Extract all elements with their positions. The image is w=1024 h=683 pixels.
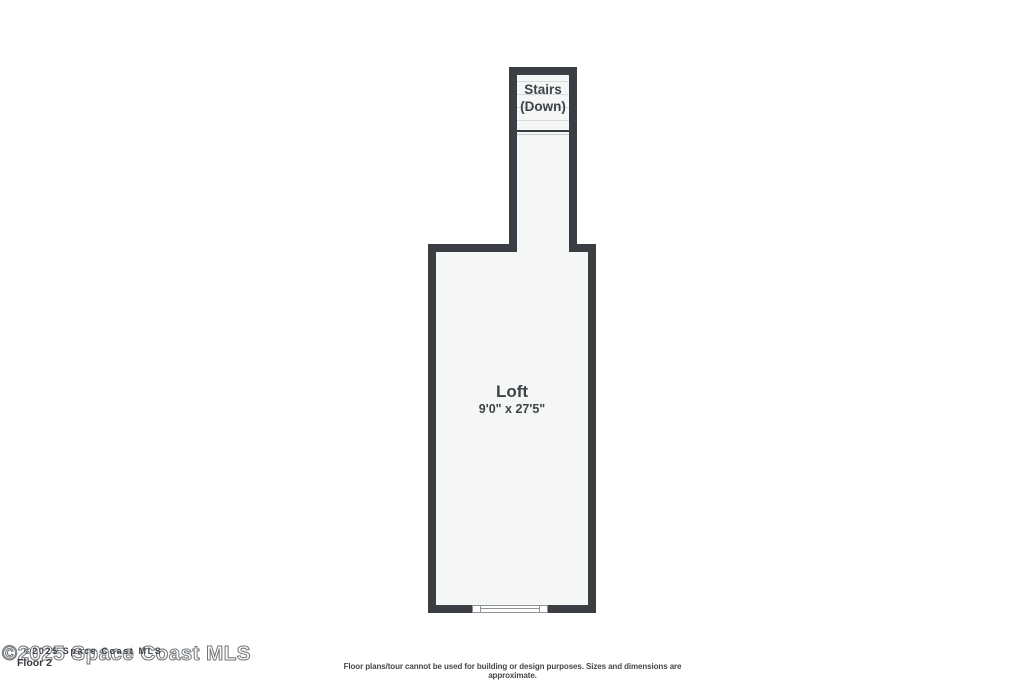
- room-label: Loft 9'0" x 27'5": [436, 382, 588, 417]
- stairs-landing-line: [517, 130, 569, 132]
- stairs-label-line1: Stairs: [509, 81, 577, 98]
- room-top-wall-left-segment: [428, 244, 517, 252]
- stair-tread-line: [517, 120, 569, 121]
- floor-label: Floor 2: [17, 657, 52, 669]
- window-jamb-left: [473, 606, 481, 612]
- watermark-overlay-text: ©2025 Space Coast MLS: [24, 646, 162, 656]
- window-jamb-right: [539, 606, 547, 612]
- stairs-landing-line-shadow: [517, 134, 569, 135]
- window-pane: [481, 606, 539, 612]
- shaft-top-wall: [509, 67, 577, 75]
- room-name: Loft: [436, 382, 588, 401]
- stairs-label: Stairs (Down): [509, 81, 577, 115]
- floor-plan-page: Stairs (Down) Loft 9'0" x 27'5" ©2025 Sp…: [0, 0, 1024, 683]
- room-right-wall: [588, 244, 596, 613]
- stairs-label-line2: (Down): [509, 98, 577, 115]
- window-pane-midline: [481, 608, 539, 609]
- room-left-wall: [428, 244, 436, 613]
- room-dimensions: 9'0" x 27'5": [436, 401, 588, 417]
- window: [472, 605, 548, 613]
- disclaimer-text: Floor plans/tour cannot be used for buil…: [340, 662, 685, 680]
- loft-room-floor: [436, 252, 588, 605]
